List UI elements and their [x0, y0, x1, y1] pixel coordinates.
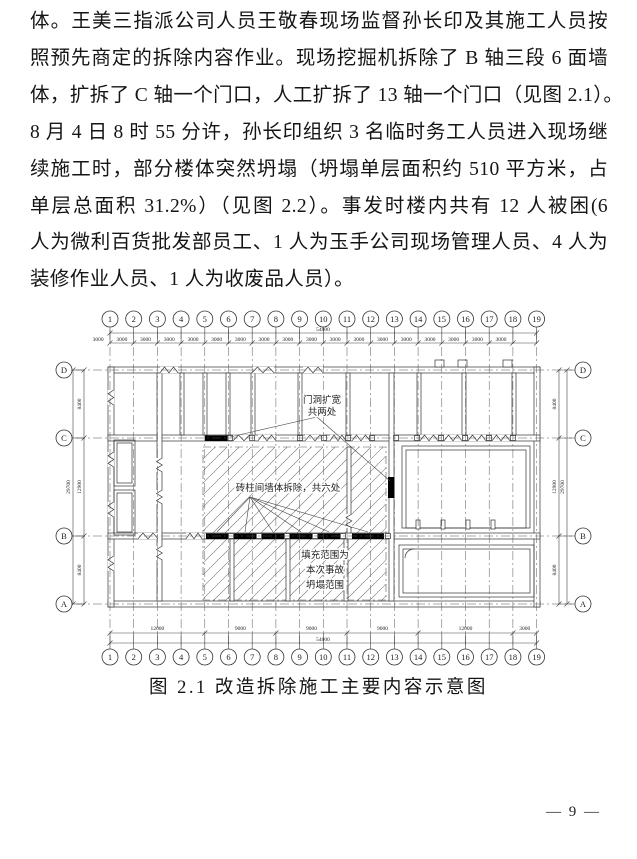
dimension-label: 3000 — [140, 337, 151, 343]
axis-label: 1 — [108, 314, 112, 324]
figure-caption: 图 2.1 改造拆除施工主要内容示意图 — [0, 673, 637, 699]
dimension-label: 3000 — [448, 337, 459, 343]
axis-label: 10 — [319, 314, 328, 324]
axis-label: 9 — [297, 314, 301, 324]
axis-label: 10 — [319, 652, 328, 662]
axis-label: 18 — [509, 314, 518, 324]
partition-wall — [344, 539, 348, 601]
partition-wall — [298, 373, 302, 435]
partition-wall — [180, 373, 184, 435]
axis-label: 18 — [509, 652, 518, 662]
dimension-label: 9000 — [377, 626, 388, 632]
axis-label: 5 — [203, 652, 207, 662]
paragraph-line: 8 月 4 日 8 时 55 分许，孙长印组织 3 名临时务工人员进入现场继 — [30, 115, 608, 152]
dimension-label: 9000 — [306, 626, 317, 632]
pilaster — [435, 360, 444, 367]
pilaster — [466, 520, 470, 529]
pilaster — [491, 520, 495, 529]
axis-label: 16 — [461, 652, 470, 662]
dimension-label: 8400 — [552, 398, 558, 409]
axis-label: 16 — [461, 314, 470, 324]
dimension-label: 12000 — [151, 626, 165, 632]
axis-label: 9 — [297, 652, 301, 662]
dimension-label: 3000 — [330, 337, 341, 343]
dimension-label: 3000 — [235, 337, 246, 343]
axis-label: 17 — [485, 652, 494, 662]
axis-label: 13 — [390, 652, 399, 662]
axis-label: 15 — [438, 314, 447, 324]
dimension-label: 29700 — [66, 480, 72, 494]
axis-label: A — [580, 599, 587, 609]
dimension-label: 12900 — [552, 480, 558, 494]
axis-label: 4 — [179, 314, 184, 324]
dimension-label: 3000 — [306, 337, 317, 343]
room-outline — [402, 446, 530, 528]
axis-label: 2 — [132, 652, 136, 662]
partition-wall — [512, 373, 516, 435]
annotation-collapse-range: 坍塌范围 — [306, 579, 344, 591]
axis-label: 14 — [414, 314, 423, 324]
axis-label: 4 — [179, 652, 184, 662]
body-paragraph: 体。王美三指派公司人员王敬春现场监督孙长印及其施工人员按 照预先商定的拆除内容作… — [30, 4, 608, 299]
pilaster — [503, 360, 512, 367]
annotations-group: 门洞扩宽 共两处 砖柱间墙体拆除，共六处 填充范围为 本次事故 坍塌范围 — [217, 394, 390, 591]
axis-label: C — [580, 433, 586, 443]
partition-wall — [251, 373, 255, 435]
dimension-label: 29700 — [560, 480, 566, 494]
dimension-label: 3000 — [496, 337, 507, 343]
axis-label: 7 — [250, 314, 254, 324]
axis-label: B — [580, 531, 586, 541]
axis-label: 6 — [226, 652, 230, 662]
collapse-hatch-region — [117, 447, 467, 601]
dimension-label: 12000 — [459, 626, 473, 632]
axis-label: 13 — [390, 314, 399, 324]
room-outline — [406, 450, 526, 528]
axis-label: 2 — [132, 314, 136, 324]
paragraph-line: 单层总面积 31.2%）（见图 2.2）。事发时楼内共有 12 人被困(6 — [30, 189, 608, 226]
annotation-wall-demolish: 砖柱间墙体拆除，共六处 — [236, 482, 341, 494]
wall-axis-3 — [157, 373, 162, 601]
axis-label: 3 — [155, 652, 159, 662]
axis-label: 15 — [438, 652, 447, 662]
dimension-label: 8400 — [552, 564, 558, 575]
partition-wall — [417, 373, 421, 435]
dimension-label: 3000 — [116, 337, 127, 343]
door-arc — [405, 549, 414, 558]
axis-label: A — [61, 599, 68, 609]
axis-label: 5 — [203, 314, 207, 324]
partition-wall — [346, 373, 350, 435]
axis-label: 8 — [274, 314, 278, 324]
annotation-collapse-range: 填充范围为 — [301, 549, 349, 561]
dimension-label: 3000 — [377, 337, 388, 343]
report-page: 体。王美三指派公司人员王敬春现场监督孙长印及其施工人员按 照预先商定的拆除内容作… — [0, 0, 637, 859]
dimension-label: 3000 — [353, 337, 364, 343]
room-outline — [117, 443, 132, 483]
axis-label: 19 — [532, 314, 541, 324]
paragraph-line: 人为微利百货批发部员工、1 人为玉手公司现场管理人员、4 人为 — [30, 225, 608, 262]
annotation-door-widen: 门洞扩宽 — [303, 394, 342, 406]
room-outline — [117, 493, 132, 532]
hatch-lines — [141, 539, 443, 601]
axis-label: 12 — [366, 314, 375, 324]
floor-plan-figure: 5400030003000300030003000300030003000300… — [0, 300, 637, 672]
axis-label: 14 — [414, 652, 423, 662]
axis-label: 6 — [226, 314, 230, 324]
axis-label: C — [61, 433, 67, 443]
dimension-label: 3000 — [472, 337, 483, 343]
dimension-label: 3000 — [187, 337, 198, 343]
room-outline — [403, 549, 530, 593]
axis-label: 3 — [155, 314, 159, 324]
axis-label: D — [61, 365, 67, 375]
dimension-label: 3000 — [259, 337, 270, 343]
dimension-label: 12900 — [77, 480, 83, 494]
paragraph-line: 体。王美三指派公司人员王敬春现场监督孙长印及其施工人员按 — [30, 4, 608, 41]
dimension-label: 9000 — [235, 626, 246, 632]
paragraph-line: 装修作业人员、1 人为收废品人员）。 — [30, 262, 608, 299]
axis-label: 12 — [366, 652, 375, 662]
axis-label: D — [580, 365, 586, 375]
axis-label: 19 — [532, 652, 541, 662]
paragraph-line: 续施工时，部分楼体突然坍塌（坍塌单层面积约 510 平方米，占 — [30, 152, 608, 189]
perimeter-wall-right — [534, 367, 540, 607]
dimension-label: 3000 — [164, 337, 175, 343]
dimension-label: 3000 — [519, 626, 530, 632]
axis-label: 7 — [250, 652, 254, 662]
axis-label: B — [61, 531, 67, 541]
annotation-door-widen: 共两处 — [308, 406, 337, 418]
axis-label: 17 — [485, 314, 494, 324]
partition-wall — [286, 539, 290, 601]
dimension-label: 3000 — [424, 337, 435, 343]
dimension-label: 3000 — [211, 337, 222, 343]
annotation-collapse-range: 本次事故 — [306, 564, 345, 576]
dimension-label: 3000 — [282, 337, 293, 343]
axis-label: 8 — [274, 652, 278, 662]
partition-wall — [226, 373, 230, 435]
dimension-label: 3000 — [93, 337, 104, 343]
partition-wall — [230, 539, 234, 601]
axis-label: 1 — [108, 652, 112, 662]
axis-label: 11 — [343, 652, 351, 662]
dimension-label: 3000 — [401, 337, 412, 343]
page-number: — 9 — — [546, 804, 601, 821]
axis-label: 11 — [343, 314, 351, 324]
paragraph-line: 照预先商定的拆除内容作业。现场挖掘机拆除了 B 轴三段 6 面墙 — [30, 41, 608, 78]
dimension-label: 8400 — [77, 398, 83, 409]
room-outline — [399, 545, 534, 597]
dimension-label: 8400 — [77, 564, 83, 575]
paragraph-line: 体，扩拆了 C 轴一个门口，人工扩拆了 13 轴一个门口（见图 2.1）。 — [30, 78, 608, 115]
